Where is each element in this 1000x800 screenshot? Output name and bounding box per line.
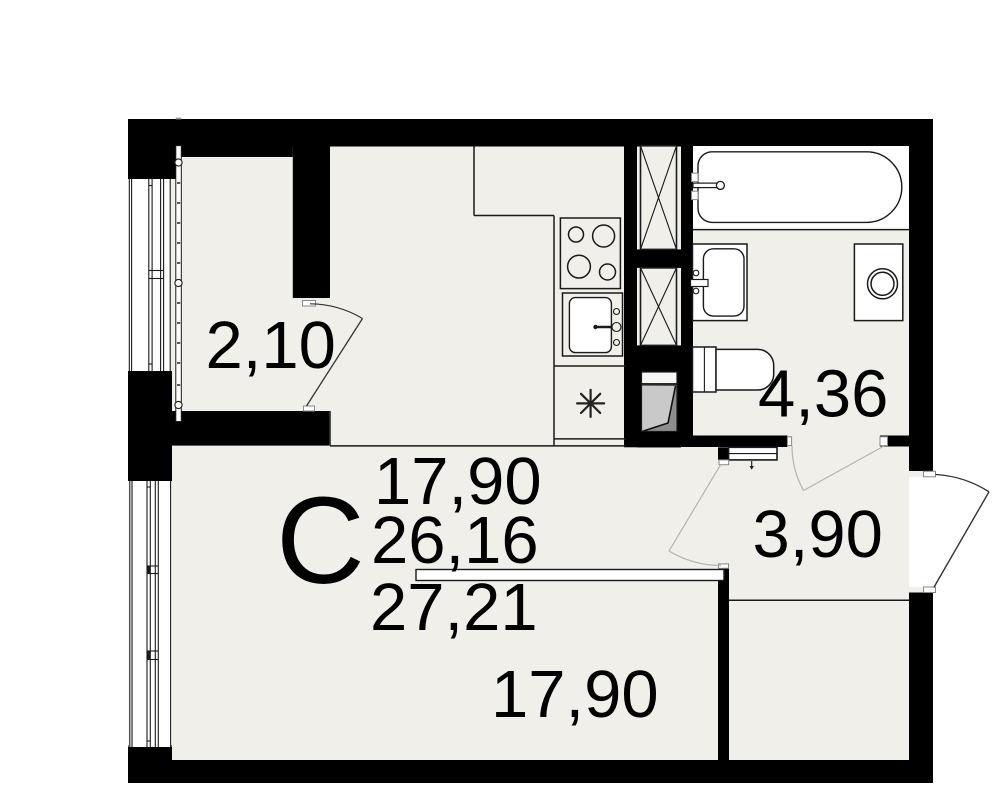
- svg-text:26,16: 26,16: [371, 503, 539, 578]
- svg-text:17,90: 17,90: [491, 657, 659, 732]
- svg-text:4,36: 4,36: [758, 357, 888, 432]
- svg-text:3,90: 3,90: [753, 497, 883, 572]
- svg-text:2,10: 2,10: [206, 308, 336, 383]
- svg-text:27,21: 27,21: [370, 570, 538, 645]
- svg-text:С: С: [276, 473, 365, 610]
